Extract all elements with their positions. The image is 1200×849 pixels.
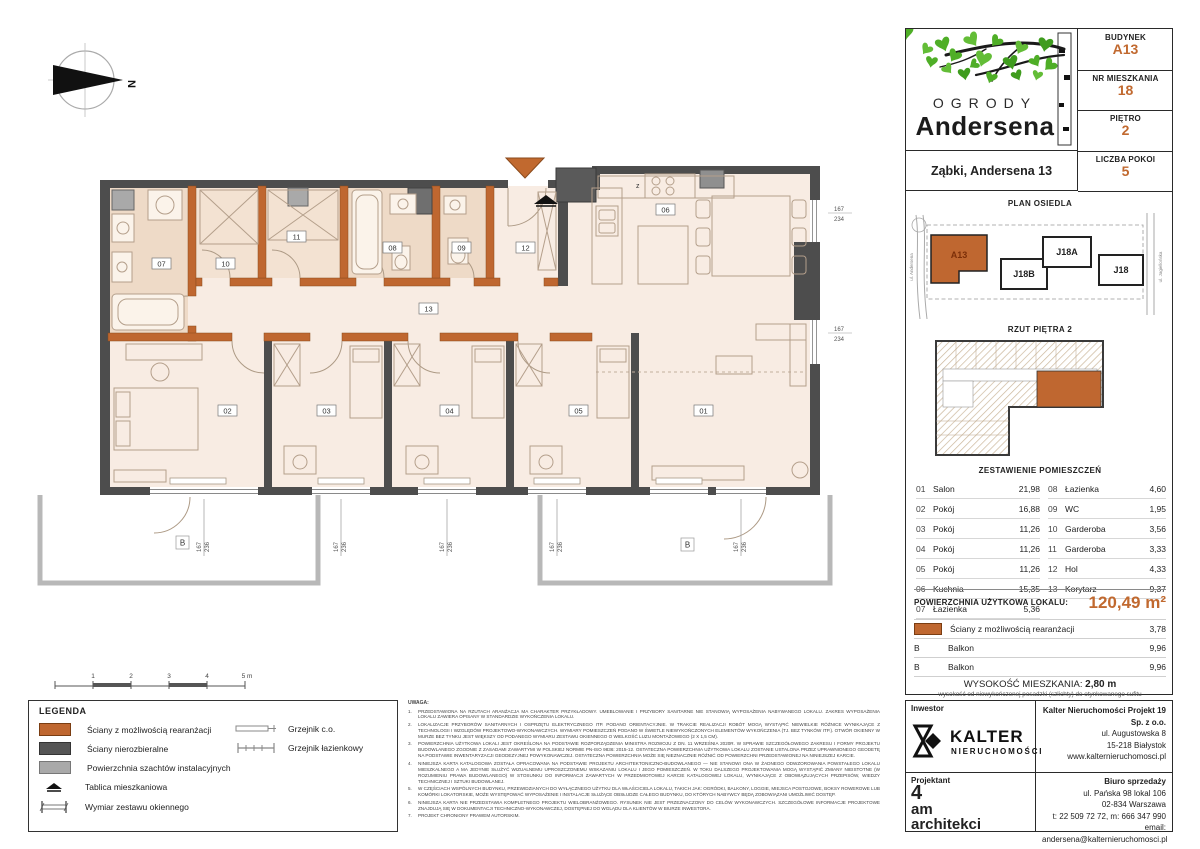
label-room-04: 04 bbox=[445, 407, 453, 416]
rooms-table-title: ZESTAWIENIE POMIESZCZEŃ bbox=[906, 466, 1174, 475]
label-balcony-left: B bbox=[180, 539, 185, 548]
notes-block: UWAGA: 1.PRZEDSTAWIONA NA RZUTACH ARANŻA… bbox=[408, 700, 880, 820]
table-row: 09WC1,95 bbox=[1048, 499, 1166, 519]
site-plan-title: PLAN OSIEDLA bbox=[906, 199, 1174, 208]
notes-title: UWAGA: bbox=[408, 700, 880, 707]
legend-title: LEGENDA bbox=[39, 706, 87, 716]
extra-row-walls: Ściany z możliwością rearanżacji 3,78 bbox=[914, 619, 1166, 638]
north-label: N bbox=[125, 80, 137, 88]
svg-text:J18: J18 bbox=[1113, 265, 1128, 275]
note-item: 1.PRZEDSTAWIONA NA RZUTACH ARANŻACJA MA … bbox=[408, 709, 880, 721]
table-row: 08Łazienka4,60 bbox=[1048, 479, 1166, 499]
svg-text:236: 236 bbox=[205, 541, 211, 552]
note-item: 2.LOKALIZACJE PRZYBORÓW SANITARNYCH I OS… bbox=[408, 722, 880, 740]
investor-label: Inwestor bbox=[911, 704, 1030, 713]
investor-brand-sub: NIERUCHOMOŚCI bbox=[951, 747, 1043, 756]
logo-cell: OGRODY Andersena bbox=[906, 29, 1078, 151]
header-liczba-pokoi: LICZBA POKOI 5 bbox=[1078, 151, 1173, 193]
sales-label: Biuro sprzedaży bbox=[1042, 776, 1166, 788]
tablica-icon bbox=[39, 780, 69, 794]
legend-item: Grzejnik c.o. bbox=[234, 723, 335, 735]
floor-plan: 167 236 167 236 167 236 167 236 167 236 … bbox=[30, 130, 880, 600]
svg-text:167: 167 bbox=[550, 541, 556, 552]
balconies bbox=[40, 495, 830, 583]
note-item: 5.W CZĘŚCIACH WSPÓLNYCH BUDYNKU, PRZEWID… bbox=[408, 786, 880, 798]
svg-text:236: 236 bbox=[742, 541, 748, 552]
svg-text:236: 236 bbox=[558, 541, 564, 552]
legend-item: Wymiar zestawu okiennego bbox=[39, 799, 189, 815]
label-room-03: 03 bbox=[322, 407, 330, 416]
label-room-12: 12 bbox=[521, 244, 529, 253]
investor-company: Kalter Nieruchomości Projekt 19 Sp. z o.… bbox=[1042, 705, 1166, 728]
note-item: 7.PROJEKT CHRONIONY PRAWEM AUTORSKIM. bbox=[408, 813, 880, 819]
investor-address-cell: Kalter Nieruchomości Projekt 19 Sp. z o.… bbox=[1036, 701, 1172, 773]
rooms-table-right: 08Łazienka4,60 09WC1,95 10Garderoba3,56 … bbox=[1048, 479, 1166, 599]
label-room-06: 06 bbox=[661, 206, 669, 215]
usable-area-label: POWIERZCHNIA UŻYTKOWA LOKALU: bbox=[914, 598, 1089, 607]
footer-info: Inwestor KALTER NIERUCHOMOŚCI Kalter Nie… bbox=[905, 700, 1173, 832]
header-nr-mieszkania: NR MIESZKANIA 18 bbox=[1078, 70, 1173, 112]
table-row: 02Pokój16,88 bbox=[916, 499, 1040, 519]
table-row: 01Salon21,98 bbox=[916, 479, 1040, 499]
legend-item: Grzejnik łazienkowy bbox=[234, 742, 363, 754]
svg-text:2: 2 bbox=[129, 673, 133, 680]
svg-text:A13: A13 bbox=[951, 250, 968, 260]
note-item: 4.NINIEJSZA KARTA KATALOGOWA ZOSTAŁA OPR… bbox=[408, 761, 880, 785]
label-balcony-right: B bbox=[685, 541, 690, 550]
leaves bbox=[906, 29, 1059, 85]
svg-text:234: 234 bbox=[834, 217, 845, 223]
apartment-height: WYSOKOŚĆ MIESZKANIA: 2,80 m wysokość od … bbox=[906, 679, 1174, 698]
info-panel: OGRODY Andersena Ząbki, Andersena 13 BUD… bbox=[905, 28, 1173, 695]
table-row: 11Garderoba3,33 bbox=[1048, 539, 1166, 559]
table-row: 03Pokój11,26 bbox=[916, 519, 1040, 539]
svg-text:167: 167 bbox=[834, 327, 845, 333]
label-room-13: 13 bbox=[424, 305, 432, 314]
table-row: 04Pokój11,26 bbox=[916, 539, 1040, 559]
unit-header: BUDYNEK A13 NR MIESZKANIA 18 PIĘTRO 2 LI… bbox=[1078, 29, 1173, 191]
designer-label: Projektant bbox=[911, 776, 1030, 785]
header-budynek: BUDYNEK A13 bbox=[1078, 29, 1173, 71]
svg-text:167: 167 bbox=[197, 541, 203, 552]
brand-line1: OGRODY bbox=[920, 95, 1050, 111]
legend-item: Ściany nierozbieralne bbox=[39, 742, 168, 755]
floor-thumb-title: RZUT PIĘTRA 2 bbox=[906, 325, 1174, 334]
project-address: Ząbki, Andersena 13 bbox=[906, 151, 1078, 191]
right-window-dims: 167 234 167 234 bbox=[828, 207, 852, 343]
shaft-swatch bbox=[39, 761, 71, 774]
svg-text:J18A: J18A bbox=[1056, 247, 1078, 257]
table-row: 12Hol4,33 bbox=[1048, 559, 1166, 579]
table-row: 05Pokój11,26 bbox=[916, 559, 1040, 579]
label-room-08: 08 bbox=[388, 244, 396, 253]
svg-text:167: 167 bbox=[334, 541, 340, 552]
svg-text:234: 234 bbox=[834, 337, 845, 343]
legend-item: Tablica mieszkaniowa bbox=[39, 780, 167, 794]
dark-wall-swatch bbox=[39, 742, 71, 755]
stove-mark: z bbox=[636, 183, 640, 190]
svg-text:167: 167 bbox=[734, 541, 740, 552]
entry-arrow bbox=[506, 158, 544, 178]
note-item: 6.NINIEJSZA KARTA NIE PRZEDSTAWIA KOMPLE… bbox=[408, 800, 880, 812]
designer-cell: Projektant 4 am architekci bbox=[906, 773, 1036, 831]
floor-thumbnail bbox=[906, 335, 1174, 461]
svg-text:4: 4 bbox=[205, 673, 209, 680]
svg-text:236: 236 bbox=[448, 541, 454, 552]
svg-text:5 m: 5 m bbox=[242, 673, 253, 680]
thumb-highlighted-unit bbox=[1037, 371, 1101, 407]
compass: N bbox=[35, 35, 150, 130]
label-room-07: 07 bbox=[157, 260, 165, 269]
svg-text:167: 167 bbox=[834, 207, 845, 213]
usable-area-value: 120,49 m² bbox=[1089, 593, 1167, 613]
svg-text:167: 167 bbox=[440, 541, 446, 552]
catalog-sheet: N bbox=[0, 0, 1200, 849]
investor-cell: Inwestor KALTER NIERUCHOMOŚCI bbox=[906, 701, 1036, 773]
window-frames-bottom bbox=[150, 487, 766, 495]
label-room-05: 05 bbox=[574, 407, 582, 416]
svg-text:1: 1 bbox=[91, 673, 95, 680]
svg-text:3: 3 bbox=[167, 673, 171, 680]
svg-text:236: 236 bbox=[342, 541, 348, 552]
legend: LEGENDA Ściany z możliwością rearanżacji… bbox=[28, 700, 398, 832]
street-label-left: ul. Andersena bbox=[909, 253, 914, 281]
investor-brand: KALTER bbox=[950, 727, 1024, 747]
label-room-09: 09 bbox=[457, 244, 465, 253]
floor-fills bbox=[108, 172, 812, 487]
street-label-right: ul. Jagiellońska bbox=[1158, 251, 1163, 282]
label-room-02: 02 bbox=[223, 407, 231, 416]
radiator-co-icon bbox=[234, 723, 278, 735]
site-plan-map: A13 J18B J18A J18 ul. Andersena ul. Jagi… bbox=[906, 211, 1174, 323]
table-row: 10Garderoba3,56 bbox=[1048, 519, 1166, 539]
label-room-10: 10 bbox=[221, 260, 229, 269]
legend-item: Powierzchnia szachtów instalacyjnych bbox=[39, 761, 231, 774]
usable-area-row: POWIERZCHNIA UŻYTKOWA LOKALU: 120,49 m² bbox=[914, 589, 1166, 615]
legend-item: Ściany z możliwością rearanżacji bbox=[39, 723, 211, 736]
note-item: 3.POWIERZCHNIA UŻYTKOWA LOKALI JEST OKRE… bbox=[408, 741, 880, 759]
orange-wall-swatch bbox=[39, 723, 71, 736]
extra-row-balcony-1: B Balkon 9,96 bbox=[914, 638, 1166, 657]
brand-line2: Andersena bbox=[910, 111, 1060, 142]
orange-wall-swatch bbox=[914, 623, 942, 635]
radiator-bathroom-icon bbox=[234, 742, 278, 754]
header-pietro: PIĘTRO 2 bbox=[1078, 110, 1173, 152]
svg-text:J18B: J18B bbox=[1013, 269, 1035, 279]
label-room-11: 11 bbox=[293, 233, 301, 242]
sales-office-cell: Biuro sprzedaży ul. Pańska 98 lokal 106 … bbox=[1036, 773, 1172, 831]
kalter-logo-icon bbox=[912, 723, 946, 759]
window-dim-icon bbox=[39, 799, 69, 815]
label-room-01: 01 bbox=[699, 407, 707, 416]
extra-row-balcony-2: B Balkon 9,96 bbox=[914, 657, 1166, 677]
extras-table: Ściany z możliwością rearanżacji 3,78 B … bbox=[914, 619, 1166, 677]
scale-bar: 1 2 3 4 5 m bbox=[40, 668, 300, 694]
